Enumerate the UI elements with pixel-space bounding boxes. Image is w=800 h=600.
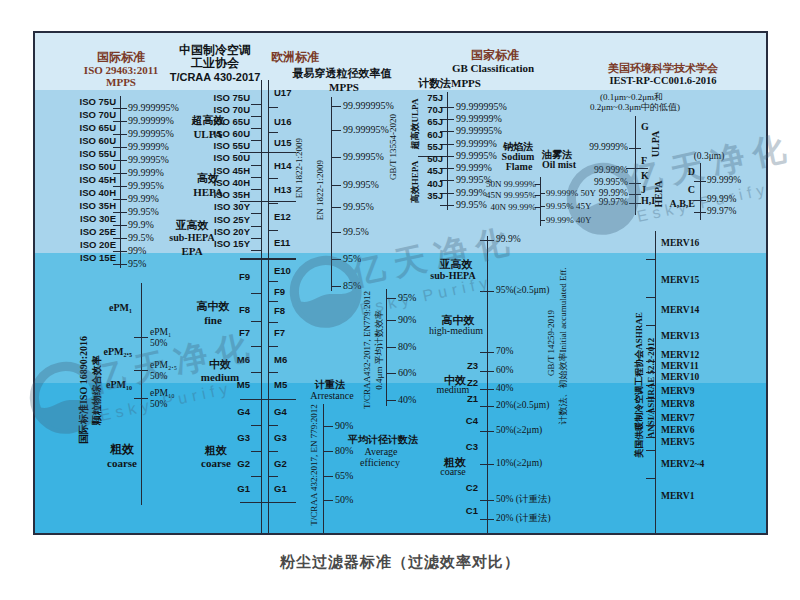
craa-tick [251,128,261,129]
iso29463-iso-45h: ISO 45H [80,175,116,185]
iso16890-coarse: coarse [107,458,137,469]
craa432_04um-t-craa432-2017-en779-2012: T/CRAA432-2017, EN779:2012 [363,291,372,409]
headers-label: 工业协会 [191,57,239,69]
headers-t-craa-430-2017: T/CRAA 430-2017 [170,72,261,83]
arrestance-tick [323,476,333,477]
en1822-tick [268,301,278,302]
craa-g3: G3 [237,433,250,443]
headers-iest-rp-cc001-6-2016: IEST-RP-CC001.6-2016 [609,76,716,87]
gb13554-tick [440,205,454,206]
mpps_axis-tick [331,259,341,260]
arrestance-90: 90% [335,421,353,431]
craa-label: 亚高效 [176,220,209,231]
en1822-tick [240,152,296,153]
en1822-tick [268,230,278,231]
craa-tick [251,116,261,117]
gb14259-20-0-5-m: 20%(≥0.5μm) [496,401,549,411]
craa-m5: M5 [237,380,250,390]
craa-iso-50u: ISO 50U [214,153,250,163]
merv-merv9: MERV9 [661,387,694,397]
en1822-g1: G1 [274,484,287,494]
en1822-h14: H14 [274,161,291,171]
en1822-tick [268,346,278,347]
iso29463-99-999: 99.999% [128,168,164,178]
gb13554-75j: 75J [427,93,443,103]
iso29463-99-99995: 99.99995% [128,129,174,139]
merv-tick [646,325,655,326]
gb14259-z1: Z1 [467,394,478,404]
sodium_oil-40n-99-99: 40N 99.99% [491,203,537,212]
sodium_oil-flame: Flame [506,162,533,172]
sodium_oil-99-999-50y: 99.999% 50Y [546,189,596,198]
iest-axis-line [635,116,636,215]
en1822-tick [268,132,278,133]
iso16890-epm: ePM₁₀ [150,389,175,399]
gb14259-c3: C3 [466,442,478,452]
craa-label: 粗效 [205,445,227,456]
iso29463-iso-60u: ISO 60U [80,136,116,146]
gb14259-high-medium: high-medium [429,326,483,336]
en1822-g3: G3 [274,433,287,443]
gb14259-medium: medium [437,385,470,395]
en1822-u15: U15 [274,138,291,148]
iest-ulpa: ULPA [651,131,661,157]
gb14259-z2: Z2 [467,378,478,388]
arrestance-average: Average [364,447,397,457]
mpps_axis-tick [331,106,341,107]
sodium_oil-tick [540,193,545,194]
craa-iso-35h: ISO 35H [214,190,250,200]
merv-merv6: MERV6 [661,426,694,436]
gb14259-label: 亚高效 [440,259,473,270]
craa-tick [251,293,261,294]
craa-iso-60u: ISO 60U [214,129,250,139]
craa-g2: G2 [237,459,250,469]
craa-tick [251,104,261,105]
en1822-tick [268,281,278,282]
mpps_axis-tick [331,232,341,233]
merv-merv11: MERV11 [661,362,699,372]
merv-merv12: MERV12 [661,351,699,361]
gb14259-c4: C4 [466,416,478,426]
iso29463-iso-20e: ISO 20E [80,240,116,250]
headers-label: 国家标准 [471,49,519,61]
iso16890-epm: ePM₁ [150,328,171,338]
craa-f7: F7 [239,328,250,338]
gb14259-gb-t-14259-2019: GB/T 14259-2019 [547,310,556,376]
gb14259-tick [480,389,494,390]
craa-epa: EPA [181,246,202,257]
gb14259-initial-accumulated-eff: 计数法、初始效率Initial accumulated Eff. [559,267,568,424]
iso16890-iso-16890-2016: 国际标准ISO 16890:2016 [79,336,89,444]
gb13554-gb-t-13554-2020: GB/T 13554-2020 [389,114,398,180]
iso29463-99-999995: 99.999995% [128,103,179,113]
mpps_axis-tick [331,207,341,208]
gb13554-60j: 60J [427,130,443,140]
iso29463-iso-30e: ISO 30E [80,214,116,224]
gb13554-99-99: 99.99% [456,188,487,198]
en1822-tick [268,425,278,426]
headers-gb-classification: GB Classification [452,63,534,74]
headers-0-1-m-0-2-m: (0.1μm~0.2μm和 [600,93,663,102]
en1822-u17: U17 [274,88,291,98]
gb13554-45j: 45J [427,166,443,176]
iso29463-99-5: 99.5% [128,233,154,243]
mpps_axis-99-95: 99.95% [343,202,374,212]
craa-fine: fine [204,315,222,326]
gb13554-ulpa: 超高效ULPA [411,99,420,150]
gb13554-50j: 50J [427,154,443,164]
craa432_04um-tick [386,373,396,374]
merv-tick [646,450,655,451]
arrestance-efficiency: efficiency [360,458,400,468]
iest-99-97: 99.97% [599,198,628,208]
craa-g1: G1 [237,484,250,494]
iest-tick [694,200,706,201]
craa432_04um-40: 40% [398,395,416,405]
iso29463-99-9: 99.9% [128,220,154,230]
iso29463-iso-50u: ISO 50U [80,162,116,172]
gb13554-99-9995: 99.9995% [456,151,497,161]
craa-medium: medium [201,372,240,383]
craa-tick [251,238,261,239]
craa-coarse: coarse [201,458,231,469]
gb14259-label: 高中效 [442,315,475,326]
mpps_axis-tick [331,286,341,287]
iso16890-tick [134,370,148,371]
arrestance-t-craa-432-2017-en-779-2012: T/CRAA 432:2017, EN 779:2012 [310,404,319,526]
en1822-f9: F9 [274,287,285,297]
iest-tick [626,168,648,169]
iest-tick [629,203,641,204]
iso29463-99-99: 99.99% [128,194,159,204]
en1822-tick [240,258,296,260]
craa-tick [251,476,261,477]
craa-iso-65u: ISO 65U [214,117,250,127]
iso16890-epm: ePM₂.₅ [104,347,132,357]
merv-tick [646,478,655,479]
iest-a-b-e: A,B,E [669,199,695,209]
en1822-tick [240,502,296,503]
craa432_04um-80: 80% [398,342,416,352]
mpps_axis-99-995: 99.995% [343,180,379,190]
gb14259-c1: C1 [466,506,478,516]
craa-tick [251,226,261,227]
merv-merv5: MERV5 [661,438,694,448]
iso29463-tick [113,264,127,265]
gb14259-z3: Z3 [467,361,478,371]
arrestance-50: 50% [335,495,353,505]
iest-tick [629,194,641,195]
craa-iso-20y: ISO 20Y [214,227,250,237]
sodium_oil-45n-99-995: 45N 99.995% [486,191,536,200]
en1822-e12: E12 [274,212,291,222]
arrestance-tick [323,451,333,452]
headers-label: 国际标准 [97,51,145,63]
dust-filter-standards-diagram: 国际标准ISO 29463:2011MPPS中国制冷空调工业协会T/CRAA 4… [0,0,800,600]
gb14259-20: 20% (计重法) [496,514,551,524]
iest-d: D [688,167,695,177]
iso16890-label: 粗效 [110,443,134,455]
mpps_axis-99-9995: 99.9995% [343,152,384,162]
diagram-caption: 粉尘过滤器标准（过滤效率对比） [280,555,520,570]
mpps_axis-95: 95% [343,254,361,264]
iso16890-50: 50% [150,400,167,410]
craa432_04um-90: 90% [398,315,416,325]
iso29463-95: 95% [128,259,146,269]
iest-99-97: 99.97% [707,207,736,217]
iso16890-tick [134,398,148,399]
iest-tick [629,148,641,149]
en1822-m5: M5 [274,380,287,390]
headers-mpps: 计数法MPPS [418,78,481,89]
gb13554-99-95: 99.95% [456,200,487,210]
craa-tick [251,250,261,251]
craa-label: 中效 [209,359,231,370]
gb14259-coarse: coarse [440,467,466,477]
mpps_axis-axis-line [331,97,332,291]
mpps_axis-tick [331,157,341,158]
arrestance-arrestance: Arrestance [310,391,353,401]
craa-iso-55u: ISO 55U [214,141,250,151]
gb13554-55j: 55J [427,142,443,152]
arrestance-tick [323,500,333,501]
sodium_oil-axis-line [540,177,541,226]
iso29463-99: 99% [128,246,146,256]
merv-merv10: MERV10 [661,373,699,383]
iso16890-50: 50% [150,339,167,349]
craa-m6: M6 [237,355,250,365]
sodium_oil-tick [540,220,545,221]
iso29463-99-9999: 99.9999% [128,142,169,152]
iso29463-iso-35h: ISO 35H [80,201,116,211]
craa432_04um-tick [386,347,396,348]
craa-tick [251,140,261,141]
gb14259-tick [480,406,494,407]
iest-99-999: 99.999% [707,176,741,186]
en1822-tick [268,451,278,452]
en1822-m6: M6 [274,355,287,365]
iest-j: J [641,185,646,195]
craa-iso-70u: ISO 70U [214,105,250,115]
craa432_04um-95: 95% [398,293,416,303]
en1822-tick [240,399,296,400]
gb13554-70j: 70J [427,105,443,115]
gb14259-c2: C2 [466,483,478,493]
craa-iso-75u: ISO 75U [214,93,250,103]
en1822-en-1822-1-2009: EN 1822-1:2009 [295,138,304,198]
craa432_04um-60: 60% [398,368,416,378]
headers-mpps: MPPS [329,82,359,93]
gb14259-70: 70% [496,347,513,357]
en1822-tick [268,178,278,179]
en1822-e11: E11 [274,238,290,248]
iso29463-iso-55u: ISO 55U [80,149,116,159]
merv-ashrae: 美国供暖制冷空调工程协会ASHRAE [635,312,644,458]
craa-tick [251,346,261,347]
en1822-g2: G2 [274,459,287,469]
arrestance-65: 65% [335,471,353,481]
iest-g: G [641,122,649,132]
iso16890-epm: ePM₂.₅ [150,361,177,371]
iso16890-epm: ePM₁₀ [106,380,132,390]
merv-merv7: MERV7 [661,414,694,424]
headers-0-2-m-0-3-m: 0.2μm~0.3μm中的低值) [590,103,680,112]
iso16890-epm: ePM₁ [109,303,132,313]
iso16890-label: 颗粒物综合效率 [92,355,102,425]
gb14259-tick [480,240,494,241]
iest-tick [694,181,706,182]
craa432_04um-tick [386,320,396,321]
iso16890-tick [134,337,148,338]
iso29463-99-9995: 99.9995% [128,155,169,165]
en1822-tick [268,372,278,373]
craa-tick [251,213,261,214]
craa-tick [251,189,261,190]
arrestance-axis-line [323,404,324,533]
en1822-tick [268,322,278,323]
craa-iso-30y: ISO 30Y [214,202,250,212]
iso29463-99-99999: 99.99999% [128,116,174,126]
arrestance-80: 80% [335,446,353,456]
craa432_04um-tick [386,400,396,401]
sodium_oil-99-99-40y: 99.99% 40Y [546,216,592,225]
gb14259-50: 50% (计重法) [496,495,551,505]
en1822-g4: G4 [274,407,287,417]
gb14259-40: 40% [496,384,513,394]
iest-c: C [688,185,695,195]
craa-tick [251,451,261,452]
craa-iso-45h: ISO 45H [214,166,250,176]
iso29463-iso-40h: ISO 40H [80,188,116,198]
gb13554-40j: 40J [427,179,443,189]
gb13554-35j: 35J [427,191,443,201]
iso29463-iso-75u: ISO 75U [80,97,116,107]
en1822-f7: F7 [274,328,285,338]
en1822-h13: H13 [274,185,291,195]
arrestance-label: 计重法 [315,380,345,390]
iest-99-999: 99.999% [594,166,628,176]
en1822-tick [240,201,296,202]
sodium_oil-50n-99-999: 50N 99.999% [486,180,536,189]
craa-label: 高中效 [197,301,230,312]
headers-iso-29463-2011: ISO 29463:2011 [84,65,158,76]
gb14259-tick [480,464,494,465]
craa-f8: F8 [239,305,250,315]
iest-99-9999: 99.9999% [589,143,628,153]
iest-hepa: HEPA [654,180,664,207]
gb13554-99-999995: 99.999995% [456,102,507,112]
en1822-en-1822-1-2009: EN 1822-1:2009 [316,160,325,220]
en1822-u16: U16 [274,117,291,127]
iso29463-iso-25e: ISO 25E [80,227,116,237]
gb14259-95-0-5-m: 95%(≥0.5μm) [496,286,549,296]
gb14259-tick [480,431,494,432]
sodium_oil-tick [540,206,545,207]
mpps_axis-85: 85% [343,281,361,291]
merv-tick [646,259,655,260]
headers-label: 中国制冷空调 [179,44,251,56]
en1822-tick [268,107,278,108]
iest-f: F [641,156,647,166]
gb14259-tick [480,500,494,501]
iso29463-99-95: 99.95% [128,207,159,217]
gb13554-99-999: 99.999% [456,163,492,173]
arrestance-label: 平均计径计数法 [348,435,418,445]
iso29463-iso-65u: ISO 65U [80,123,116,133]
arrestance-tick [323,426,333,427]
craa-tick [251,321,261,322]
gb14259-60: 60% [496,366,513,376]
headers-mpps: MPPS [106,77,136,88]
craa-tick [251,372,261,373]
craa432_04um-tick [386,298,396,299]
craa-iso-15y: ISO 15Y [214,239,250,249]
merv-merv15: MERV15 [661,276,699,286]
gb14259-tick [480,352,494,353]
merv-tick [646,297,655,298]
iest-99-995: 99.995% [594,178,628,188]
merv-merv13: MERV13 [661,332,699,342]
gb14259-axis-line [487,236,488,533]
craa-iso-40h: ISO 40H [214,178,250,188]
craa-tick [251,425,261,426]
craa-tick [251,177,261,178]
sodium_oil-99-95-45y: 99.95% 45Y [546,202,592,211]
gb14259-sub-hepa: sub-HEPA [430,271,475,281]
gb14259-tick [480,519,494,520]
en1822-axis-line [268,80,269,533]
gb13554-99-99999: 99.99999% [456,114,502,124]
craa-f9: F9 [239,272,250,282]
gb13554-hepa: 高效HEPA [411,161,420,203]
merv-merv2-4: MERV2~4 [661,460,704,470]
iso16890-50: 50% [150,372,167,382]
mpps_axis-tick [331,185,341,186]
merv-merv1: MERV1 [661,492,694,502]
gb13554-99-9999: 99.9999% [456,139,497,149]
iso29463-iso-15e: ISO 15E [80,253,116,263]
background-band-bottom [35,383,766,533]
iest-0-3-m: (0.3μm) [694,152,725,162]
iest-tick [629,183,641,184]
merv-ansi-ashrae-52-2-2012: ANSI/ASHRAE 52.2-2012 [647,338,656,439]
iso29463-iso-70u: ISO 70U [80,110,116,120]
gb13554-65j: 65J [427,117,443,127]
merv-merv14: MERV14 [661,306,699,316]
mpps_axis-99-5: 99.5% [343,227,369,237]
gb14259-99-9: 99.9% [496,235,521,245]
mpps_axis-99-999995: 99.999995% [343,101,394,111]
headers-label: 美国环境科学技术学会 [608,63,718,74]
iest-tick [694,212,706,213]
craa-g4: G4 [237,407,250,417]
iso16890-axis-line [141,283,142,505]
en1822-tick [268,203,278,204]
craa-tick [251,165,261,166]
mpps_axis-99-99995: 99.99995% [343,125,389,135]
sodium_oil-oil-mist: Oil mist [542,160,576,170]
gb14259-tick [480,291,494,292]
gb14259-tick [480,371,494,372]
craa-iso-25y: ISO 25Y [214,215,250,225]
iso29463-99-995: 99.995% [128,181,164,191]
gb14259-10-2-m: 10%(≥2μm) [496,459,542,469]
merv-merv16: MERV16 [661,239,699,249]
en1822-f8: F8 [274,306,285,316]
craa432_04um-0-4-m: 0.4μm 平均计数效率 [375,310,384,389]
craa-sub-hepa: sub-HEPA [169,233,214,243]
